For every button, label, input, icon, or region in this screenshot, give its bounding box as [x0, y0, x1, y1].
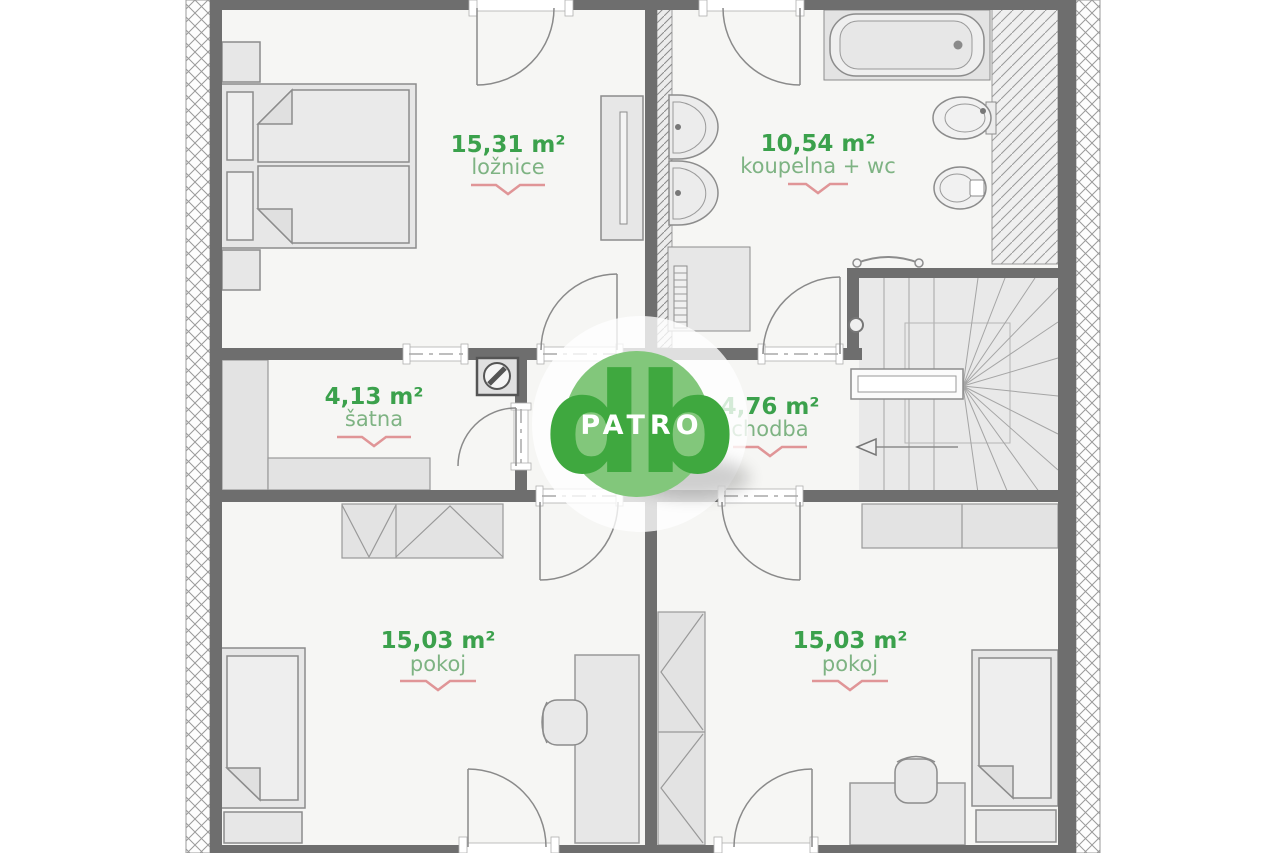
exterior-insulation-band-left	[186, 0, 210, 853]
room-name: koupelna + wc	[740, 154, 896, 178]
wall-bedroom-bathroom	[645, 8, 657, 348]
shelf-icon	[862, 504, 1058, 548]
bathtub-icon	[824, 10, 990, 80]
wall-top	[210, 0, 1076, 10]
closet-shelf-icon	[222, 360, 268, 490]
room-area: 15,03 m²	[381, 628, 496, 654]
chair-icon	[895, 757, 937, 804]
wardrobe-icon	[342, 504, 503, 558]
nightstand-icon	[222, 42, 260, 82]
stair-door-knob-icon	[849, 318, 863, 332]
floor-plan: 15,31 m² ložnice 10,54 m² koupelna + wc …	[0, 0, 1280, 853]
bathroom-hatched-zone	[992, 8, 1058, 264]
faucet-icon	[675, 190, 681, 196]
chimney-icon	[477, 358, 518, 395]
single-bed-icon	[972, 650, 1058, 806]
nightstand-icon	[224, 812, 302, 843]
chair-icon	[542, 700, 587, 745]
nightstand-icon	[976, 810, 1056, 842]
wall-between-rooms	[645, 502, 657, 845]
bidet-icon	[933, 97, 996, 139]
faucet-icon	[675, 124, 681, 130]
wall-left	[210, 0, 222, 853]
wall-right	[1058, 0, 1076, 853]
room-name: pokoj	[410, 652, 466, 676]
washing-machine-icon	[668, 247, 750, 331]
drain-icon	[954, 41, 963, 50]
wall-bottom	[210, 845, 1076, 853]
pillow-icon	[227, 172, 253, 240]
single-bed-icon	[220, 648, 305, 808]
room-name: šatna	[345, 407, 403, 431]
desk-icon	[575, 655, 639, 843]
floor-plan-page: 15,31 m² ložnice 10,54 m² koupelna + wc …	[0, 0, 1280, 853]
wardrobe-icon	[601, 96, 643, 240]
pillow-icon	[227, 92, 253, 160]
watermark-logo: db PATRO	[532, 316, 750, 532]
room-name: pokoj	[822, 652, 878, 676]
logo-wordmark: PATRO	[580, 410, 703, 441]
staircase	[851, 278, 1058, 493]
nightstand-icon	[222, 250, 260, 290]
room-name: ložnice	[471, 155, 544, 179]
exterior-insulation-band-right	[1076, 0, 1100, 853]
wardrobe-icon	[658, 612, 705, 845]
room-area: 15,03 m²	[793, 628, 908, 654]
wall-stairs-top	[847, 268, 1058, 278]
closet-shelf-icon	[268, 458, 430, 490]
toilet-icon	[934, 167, 986, 209]
double-bed-icon	[220, 84, 416, 248]
